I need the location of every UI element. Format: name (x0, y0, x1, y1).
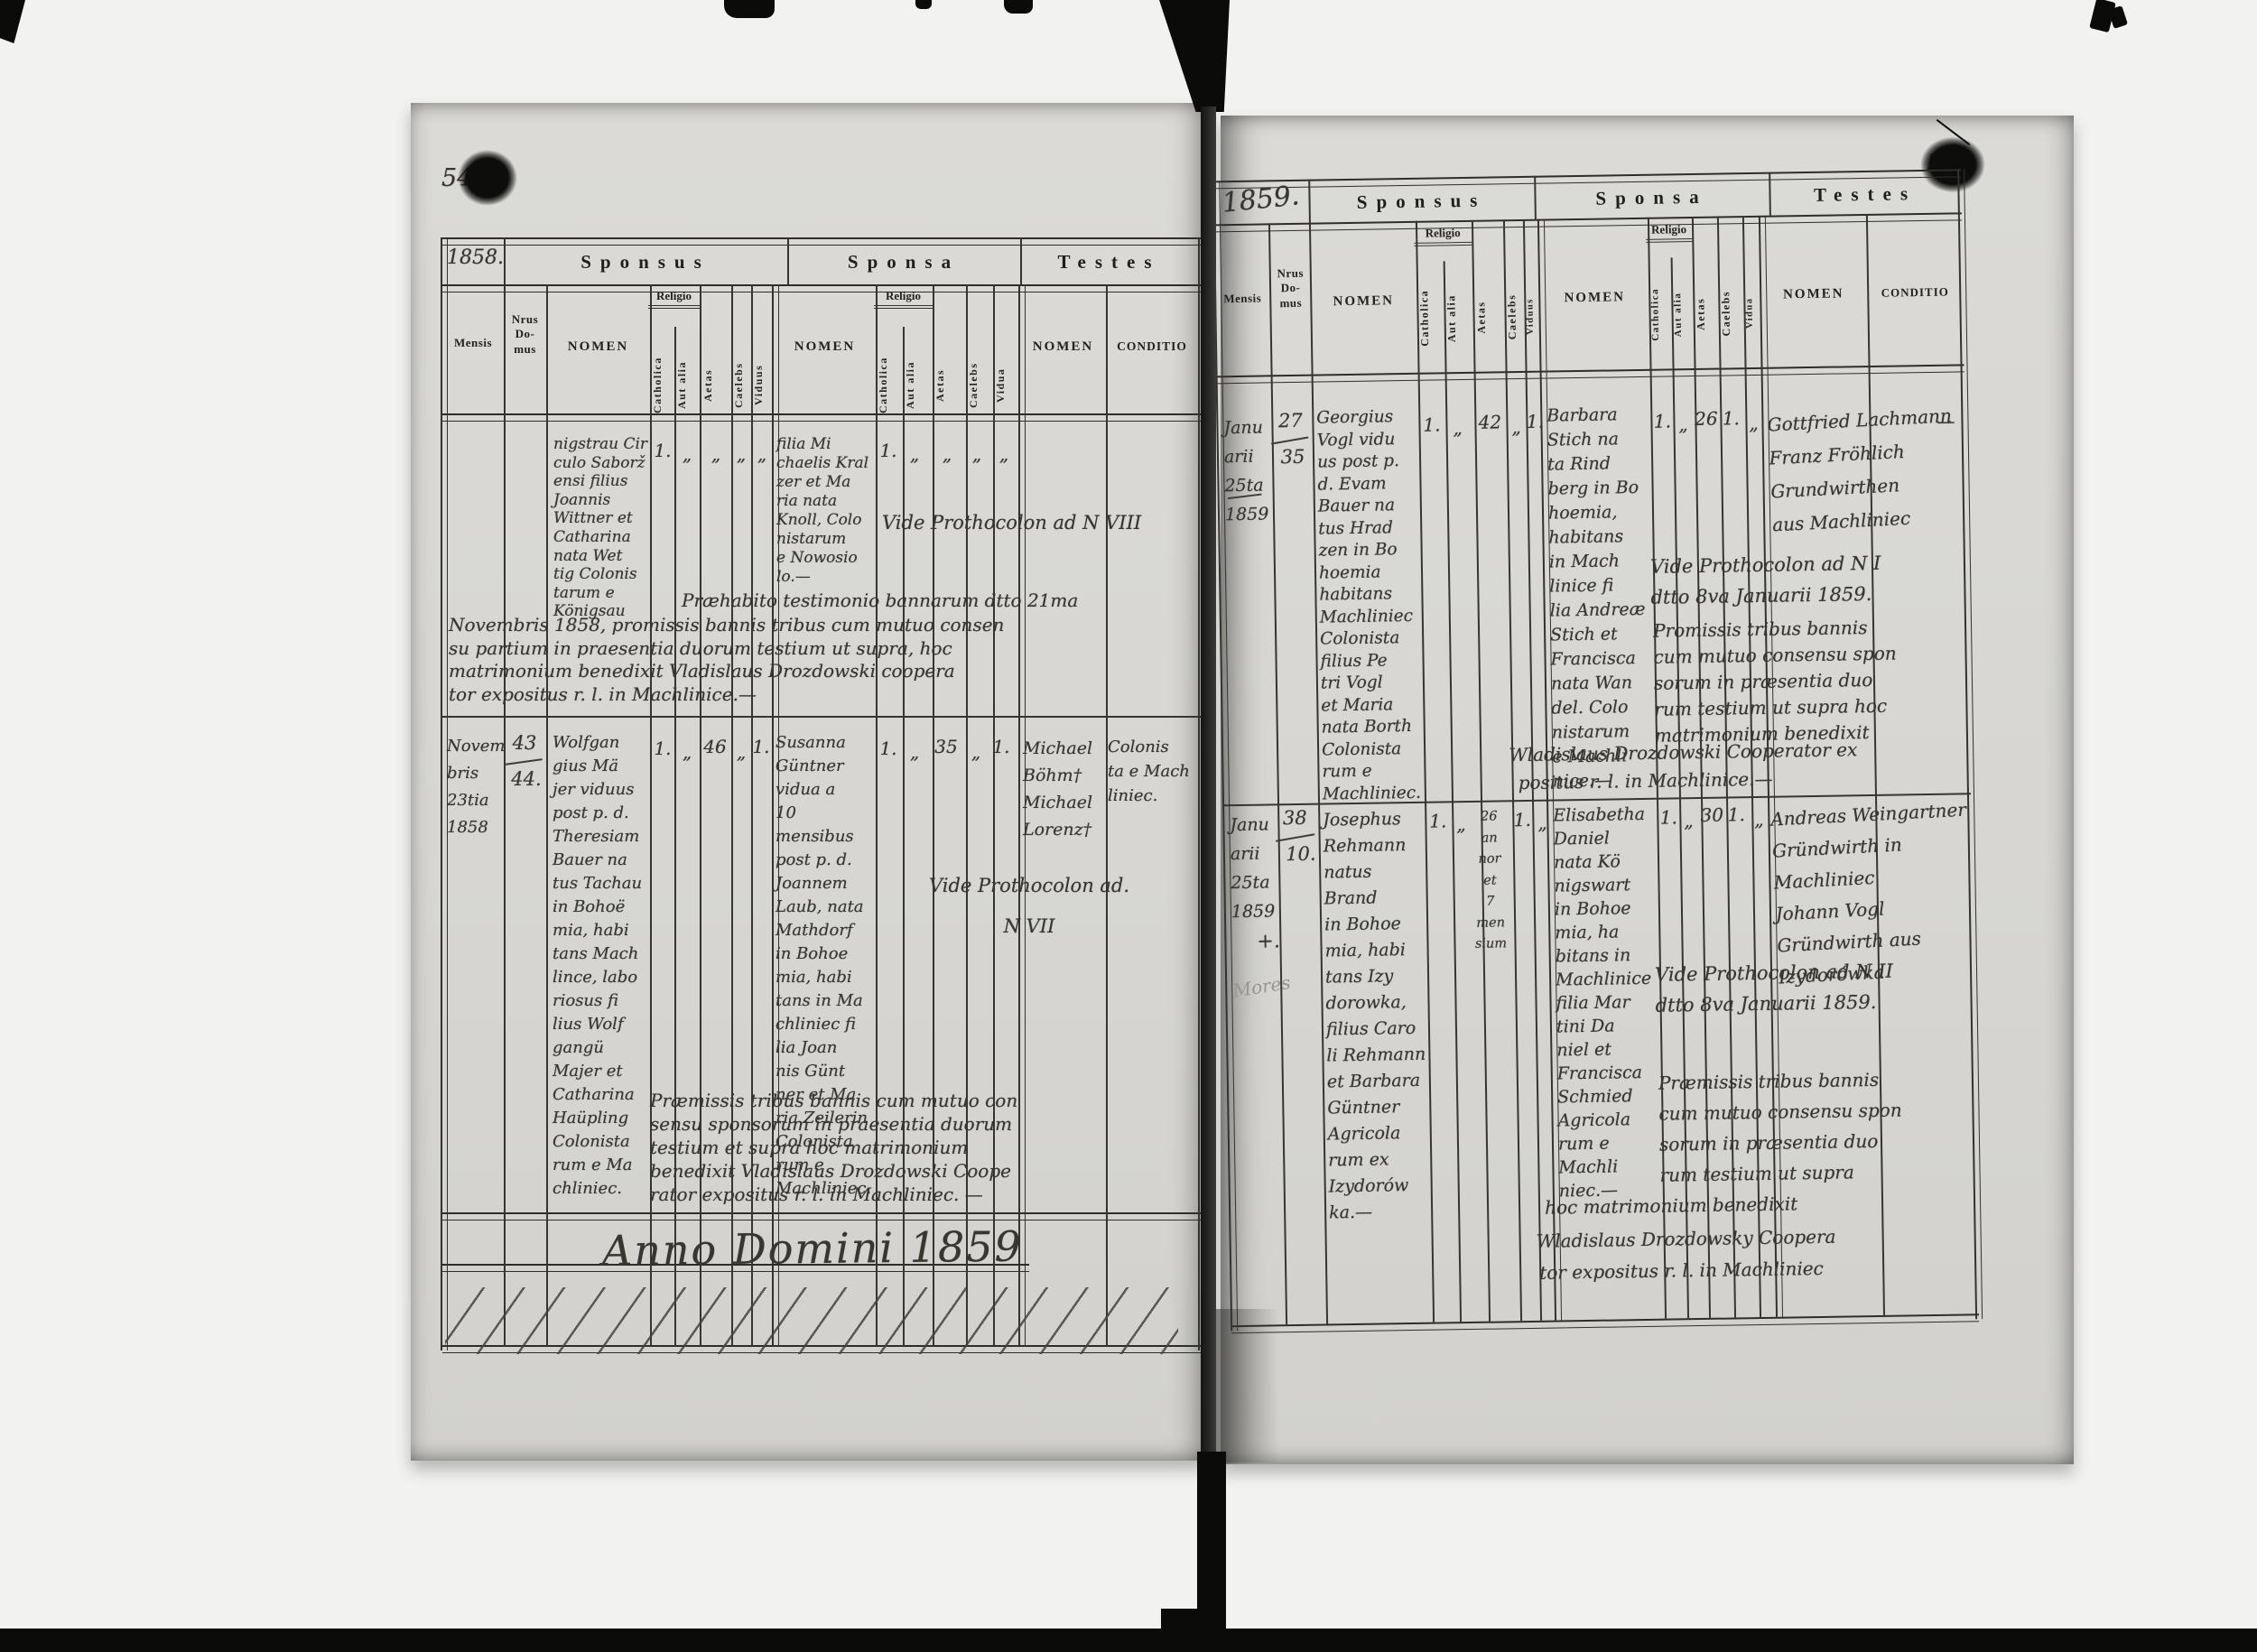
cancelled-rows-hatching (445, 1287, 1178, 1354)
scan-bottom-edge (0, 1629, 2257, 1652)
fraction-stroke (1271, 436, 1309, 444)
record1-sponsa-vidua: „ (1744, 412, 1762, 435)
col-religio-sponsa: Religio (1646, 222, 1692, 243)
col-conditio: CONDITIO (1867, 284, 1963, 301)
record2-cross-note: +. (1257, 929, 1280, 955)
record1-sponsus-caelebs: „ (733, 442, 749, 466)
record1-sponsus-caelebs: „ (1507, 415, 1525, 439)
record2-marriage-note-wide2: Wladislaus Drozdowsky Coopera (1536, 1223, 1960, 1253)
record2-sponsus-viduus: 1. (751, 735, 771, 758)
table-rule (442, 284, 1203, 292)
record2-sponsa-catholica: 1. (877, 737, 900, 760)
record1-sponsus-nomen: nigstrau Cir culo Saborž ensi filius Joa… (553, 435, 649, 621)
record1-marriage-note-line1: Præhabito testimonio bannarum dtto 21ma (682, 589, 1196, 612)
record2-mensis: Janu arii 25ta 1859 (1230, 810, 1282, 926)
record1-sponsus-viduus: 1. (1526, 410, 1544, 433)
table-rule (1212, 181, 1238, 1331)
col-nomen-sponsa: NOMEN (774, 339, 876, 355)
record2-conditio: Colonis ta e Mach liniec. (1108, 735, 1198, 808)
record1-sponsa-aetas: „ (934, 442, 960, 466)
record1-sponsa-caelebs: 1. (1719, 406, 1742, 430)
record1-sponsa-aut-alia: „ (904, 442, 925, 466)
record2-pencil-note: Mores (1231, 966, 1321, 1003)
col-viduus-sponsus: Viduus (1525, 266, 1540, 367)
record1-sponsa-caelebs: „ (967, 442, 987, 466)
col-aut-alia-sponsa: Aut alia (1672, 264, 1695, 365)
marriage-register-scan: 54 1858. Sponsus Sponsa Tes (0, 0, 2257, 1652)
record2-marriage-note: Præmissis tribus bannis cum mutuo consen… (1658, 1063, 1985, 1191)
col-nomen-sponsus: NOMEN (1310, 293, 1416, 311)
col-mensis: Mensis (442, 336, 504, 350)
record1-sponsa-vidua: „ (994, 442, 1014, 466)
table-rule (442, 1212, 1203, 1220)
table-rule (442, 237, 1203, 246)
fraction-stroke (1276, 833, 1315, 842)
year-label: 1859. (1221, 178, 1301, 221)
col-viduus-sponsus: Viduus (752, 329, 774, 441)
record2-sponsus-aetas: 26 an nor et 7 men sium (1468, 806, 1512, 955)
record1-sponsus-viduus: „ (753, 442, 771, 466)
section-testes: Testes (1769, 181, 1961, 207)
record2-sponsus-viduus: „ (1533, 812, 1551, 835)
clamp-mark (1004, 0, 1033, 14)
record1-protocol-note: Vide Prothocolon ad N VIII (882, 511, 1198, 535)
record2-sponsa-caelebs: „ (969, 740, 983, 764)
col-religio-sponsus: Religio (1414, 226, 1472, 246)
record2-sponsa-vidua: 1. (990, 735, 1012, 758)
col-nomen-testes: NOMEN (1020, 339, 1106, 355)
spine-shadow-bottom (1197, 1452, 1226, 1632)
record2-sponsa-nomen: Elisabetha Daniel nata Kö nigswart in Bo… (1553, 803, 1662, 1203)
fraction-stroke (505, 758, 543, 766)
col-nrus-domus: Nrus Do- mus (1271, 266, 1311, 311)
record2-mensis: Novem bris 23tia 1858 (447, 733, 505, 841)
record2-marriage-note-wide1: hoc matrimonium benedixit (1545, 1190, 1933, 1220)
spine-gap (1201, 107, 1216, 1459)
table-rule (442, 413, 1203, 422)
col-caelebs-sponsus: Caelebs (1505, 266, 1526, 367)
record2-marriage-note-wide3: tor expositus r. l. in Machliniec (1539, 1254, 1964, 1284)
record2-house-number-top: 38 (1277, 806, 1313, 831)
col-mensis: Mensis (1215, 291, 1269, 306)
record2-testes-nomen: Michael Böhm† Michael Lorenz† (1023, 735, 1106, 843)
col-religio-sponsus: Religio (648, 289, 700, 309)
table-rule (442, 716, 1203, 718)
margin-dash: — (1937, 409, 1967, 433)
record2-sponsa-aut-alia: „ (905, 740, 924, 764)
record2-sponsa-aut-alia: „ (1678, 809, 1698, 832)
record2-sponsus-nomen: Josephus Rehmann natus Brand in Bohoe mi… (1323, 806, 1432, 1227)
table-rule (1268, 223, 1287, 1324)
right-page: 55 (1221, 116, 2074, 1464)
section-sponsa: Sponsa (1534, 185, 1769, 211)
col-nomen-sponsus: NOMEN (546, 339, 650, 355)
table-rule (1217, 364, 1964, 384)
record2-sponsa-aetas: 30 (1698, 803, 1725, 827)
record1-sponsus-catholica: 1. (651, 439, 674, 462)
record1-sponsa-aetas: 26 (1693, 407, 1719, 431)
record2-house-number-bottom: 44. (508, 767, 544, 792)
record1-mensis: Janu arii 25ta 1859 (1223, 413, 1274, 529)
ink-blot (458, 150, 517, 206)
table-rule (546, 284, 548, 1347)
corner-mark-top-left (0, 0, 25, 43)
record2-sponsa-caelebs: 1. (1724, 803, 1748, 826)
col-aut-alia-sponsus: Aut alia (675, 329, 700, 441)
record1-marriage-note: Novembris 1858, promissis bannis tribus … (449, 614, 1198, 706)
record1-sponsa-nomen: Barbara Stich na ta Rind berg in Bo hoem… (1546, 403, 1656, 794)
record2-protocol-note: Vide Prothocolon ad. N VII (867, 866, 1192, 947)
record1-house-number-bottom: 35 (1275, 445, 1311, 470)
table-rule (1231, 1313, 1979, 1333)
record1-sponsus-nomen: Georgius Vogl vidu us post p. d. Evam Ba… (1316, 406, 1424, 806)
left-page: 54 1858. Sponsus Sponsa Tes (411, 103, 1209, 1461)
section-sponsus: Sponsus (504, 251, 787, 274)
col-catholica-sponsa: Catholica (877, 329, 903, 441)
record1-marriage-note: Promissis tribus bannis cum mutuo consen… (1653, 613, 1973, 749)
year-label: 1858. (447, 246, 501, 272)
col-catholica-sponsus: Catholica (651, 329, 674, 441)
section-sponsa: Sponsa (787, 251, 1020, 274)
record2-protocol-note: Vide Prothocolon ad N II dtto 8va Januar… (1655, 954, 1981, 1021)
col-catholica-sponsus: Catholica (1417, 267, 1445, 368)
col-conditio: CONDITIO (1106, 339, 1198, 354)
spine-shadow-top (1159, 0, 1230, 112)
record2-sponsus-aetas: 46 (701, 735, 729, 758)
right-page-content: 55 (1210, 103, 2084, 1465)
record2-sponsa-catholica: 1. (1657, 805, 1680, 829)
record2-house-number-bottom: 10. (1283, 842, 1319, 868)
col-vidua-sponsa: Vidua (994, 329, 1018, 441)
table-rule (1214, 212, 1962, 232)
record2-house-number-top: 43 (506, 731, 543, 756)
record1-sponsus-aetas: 42 (1475, 410, 1504, 433)
record1-sponsa-catholica: 1. (877, 439, 900, 462)
col-vidua-sponsa: Vidua (1744, 263, 1762, 364)
record1-sponsa-nomen: filia Mi chaelis Kral zer et Ma ria nata… (776, 435, 876, 587)
record1-sponsus-aut-alia: „ (1446, 416, 1468, 440)
record2-sponsa-aetas: 35 (933, 735, 960, 758)
corner-mark-top-right (2108, 5, 2128, 29)
record2-sponsus-caelebs: „ (734, 740, 748, 764)
col-caelebs-sponsa: Caelebs (1719, 263, 1744, 364)
record2-sponsus-caelebs: 1. (1511, 808, 1533, 831)
record1-house-number-top: 27 (1272, 409, 1308, 434)
record1-sponsus-aut-alia: „ (676, 442, 698, 466)
col-nomen-sponsa: NOMEN (1540, 290, 1649, 307)
col-religio-sponsa: Religio (874, 289, 933, 309)
clamp-mark (724, 0, 775, 18)
col-aut-alia-sponsa: Aut alia (904, 329, 933, 441)
table-rule (1472, 220, 1491, 1322)
col-aetas-sponsa: Aetas (933, 329, 966, 441)
record1-sponsa-catholica: 1. (1650, 409, 1674, 432)
record2-sponsus-aut-alia: „ (677, 740, 697, 764)
record1-protocol-note: Vide Prothocolon ad N I dtto 8va Januari… (1650, 546, 1969, 613)
clamp-mark (915, 0, 932, 9)
record2-sponsa-vidua: „ (1750, 808, 1768, 831)
section-testes: Testes (1020, 251, 1198, 274)
record2-sponsus-catholica: 1. (1426, 809, 1450, 832)
record2-sponsus-nomen: Wolfgan gius Mä jer viduus post p. d. Th… (553, 731, 650, 1201)
spine-smudge (1216, 1309, 1279, 1462)
col-aut-alia-sponsus: Aut alia (1444, 267, 1474, 368)
col-aetas-sponsa: Aetas (1694, 264, 1719, 365)
col-caelebs-sponsa: Caelebs (967, 329, 993, 441)
col-aetas-sponsus: Aetas (701, 329, 731, 441)
col-aetas-sponsus: Aetas (1474, 266, 1506, 368)
record1-sponsa-aut-alia: „ (1673, 413, 1693, 436)
record1-sponsus-aetas: „ (703, 442, 729, 466)
col-nrus-domus: Nrus Do- mus (505, 312, 545, 357)
section-sponsus: Sponsus (1308, 189, 1534, 215)
col-nomen-testes: NOMEN (1760, 286, 1867, 303)
record2-marriage-note: Præmissis tribus bannis cum mutuo con se… (650, 1089, 1205, 1206)
anno-domini-heading: Anno Domini 1859 (602, 1220, 1023, 1279)
col-caelebs-sponsus: Caelebs (732, 329, 751, 441)
record1-marriage-note-wide2: positus r. l. in Machlinice.— (1519, 766, 1898, 795)
col-catholica-sponsa: Catholica (1649, 264, 1673, 365)
record2-sponsus-catholica: 1. (651, 737, 674, 760)
record1-sponsus-catholica: 1. (1419, 413, 1444, 436)
